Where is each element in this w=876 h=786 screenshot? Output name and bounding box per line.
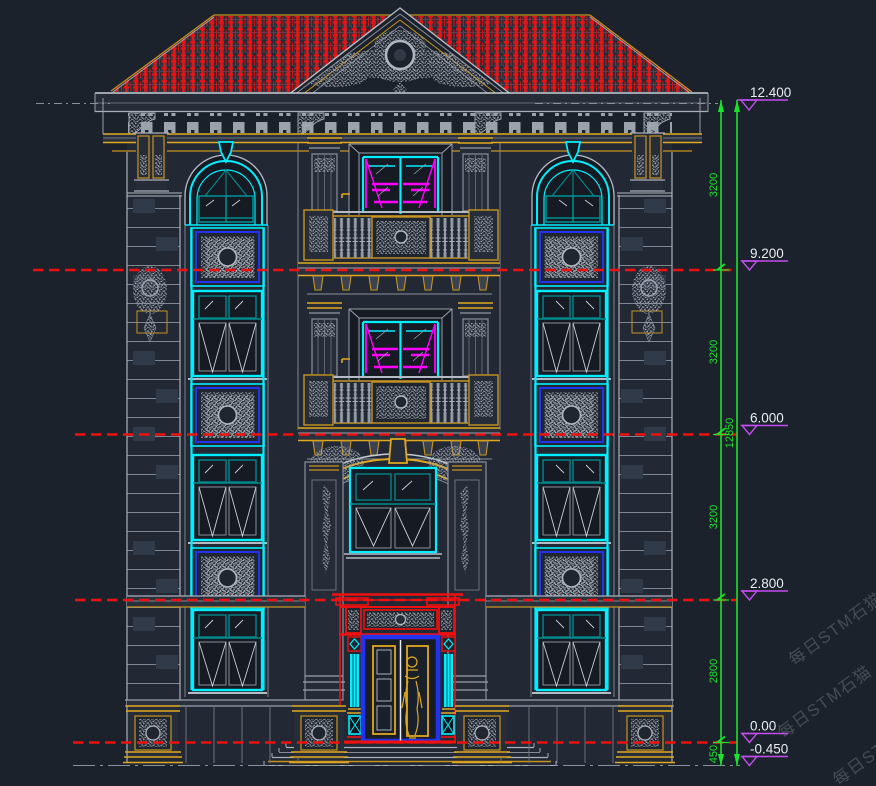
svg-text:12850: 12850 (724, 418, 736, 449)
svg-text:0.00: 0.00 (750, 719, 776, 734)
svg-text:3200: 3200 (708, 173, 720, 197)
svg-text:3200: 3200 (708, 340, 720, 364)
svg-text:12.400: 12.400 (750, 85, 791, 100)
svg-text:3200: 3200 (708, 505, 720, 529)
svg-text:450: 450 (708, 745, 720, 763)
svg-text:2.800: 2.800 (750, 576, 784, 591)
svg-text:-0.450: -0.450 (750, 742, 788, 757)
svg-text:2800: 2800 (708, 659, 720, 683)
svg-text:9.200: 9.200 (750, 246, 784, 261)
svg-text:6.000: 6.000 (750, 411, 784, 426)
